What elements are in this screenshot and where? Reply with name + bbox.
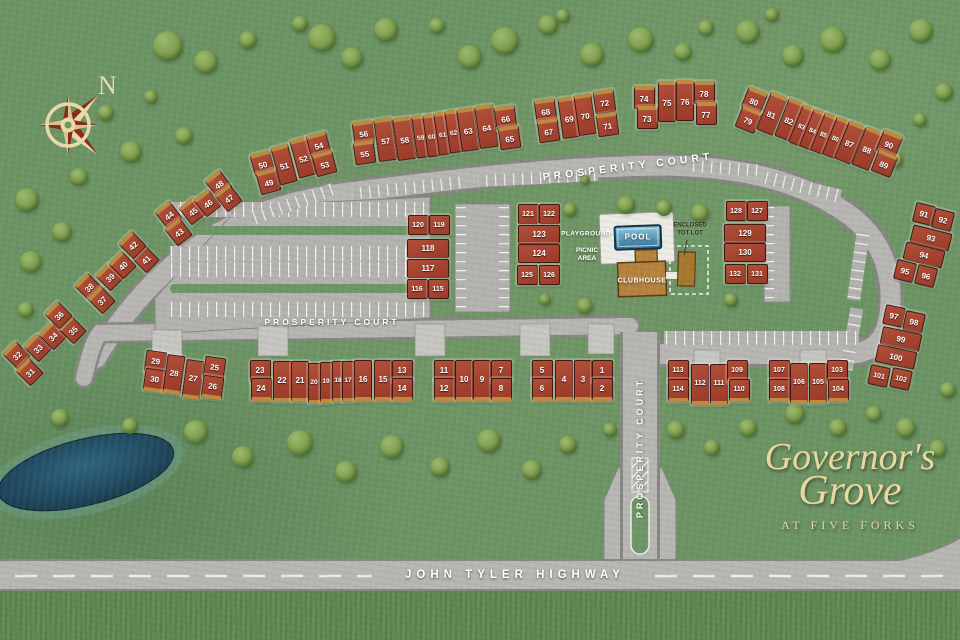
building-unit-120: 120: [408, 215, 429, 235]
building-unit-101: 101: [867, 364, 891, 388]
building-unit-111: 111: [710, 364, 728, 405]
building-unit-4: 4: [555, 360, 573, 401]
building-unit-127: 127: [747, 201, 768, 221]
building-unit-71: 71: [595, 112, 619, 138]
building-unit-130: 130: [724, 243, 766, 262]
building-unit-118: 118: [407, 239, 449, 258]
building-unit-67: 67: [536, 118, 560, 144]
building-unit-10: 10: [455, 360, 473, 401]
building-unit-15: 15: [374, 360, 392, 401]
building-unit-76: 76: [676, 80, 694, 121]
building-unit-75: 75: [658, 81, 676, 122]
building-unit-3: 3: [574, 360, 592, 401]
building-unit-92: 92: [931, 208, 955, 232]
building-unit-132: 132: [725, 264, 746, 284]
building-unit-78: 78: [694, 81, 715, 104]
building-unit-117: 117: [407, 259, 449, 278]
building-unit-55: 55: [352, 140, 376, 166]
building-unit-122: 122: [539, 204, 560, 224]
building-unit-9: 9: [473, 360, 491, 401]
building-unit-8: 8: [491, 378, 512, 401]
building-unit-125: 125: [517, 265, 538, 285]
building-unit-115: 115: [428, 279, 449, 299]
building-unit-102: 102: [889, 367, 913, 391]
building-unit-129: 129: [724, 224, 766, 243]
building-unit-110: 110: [729, 379, 750, 402]
building-unit-106: 106: [790, 363, 808, 404]
building-unit-95: 95: [893, 259, 917, 283]
logo-five-forks: AT FIVE FORKS: [740, 518, 960, 533]
building-unit-123: 123: [518, 225, 560, 244]
building-unit-121: 121: [518, 204, 539, 224]
building-unit-108: 108: [769, 379, 790, 402]
compass-rose: N: [10, 62, 130, 182]
community-logo: Governor's Grove AT FIVE FORKS: [740, 438, 960, 533]
building-unit-21: 21: [291, 361, 309, 402]
building-unit-77: 77: [696, 102, 717, 125]
building-unit-12: 12: [434, 378, 455, 401]
building-unit-17: 17: [342, 361, 355, 402]
building-unit-96: 96: [914, 264, 938, 288]
building-unit-6: 6: [532, 378, 553, 401]
building-unit-105: 105: [809, 363, 827, 404]
building-unit-126: 126: [539, 265, 560, 285]
building-unit-112: 112: [691, 364, 709, 405]
building-unit-22: 22: [273, 361, 292, 402]
building-unit-72: 72: [592, 89, 616, 115]
building-unit-24: 24: [251, 378, 272, 401]
building-unit-128: 128: [726, 201, 747, 221]
building-layer: 5643121112109782324222120191817161513142…: [0, 0, 960, 640]
building-unit-14: 14: [392, 378, 413, 401]
building-unit-104: 104: [828, 379, 849, 402]
compass-star: [38, 90, 103, 161]
compass-north-label: N: [98, 71, 117, 100]
building-unit-124: 124: [518, 244, 560, 263]
building-unit-16: 16: [354, 360, 372, 401]
building-unit-73: 73: [637, 106, 658, 129]
building-unit-119: 119: [429, 215, 450, 235]
building-unit-114: 114: [668, 379, 689, 402]
building-unit-65: 65: [497, 125, 521, 151]
building-unit-26: 26: [200, 375, 224, 401]
building-unit-116: 116: [407, 279, 428, 299]
building-unit-131: 131: [747, 264, 768, 284]
site-map: 5643121112109782324222120191817161513142…: [0, 0, 960, 640]
building-unit-2: 2: [592, 378, 613, 401]
